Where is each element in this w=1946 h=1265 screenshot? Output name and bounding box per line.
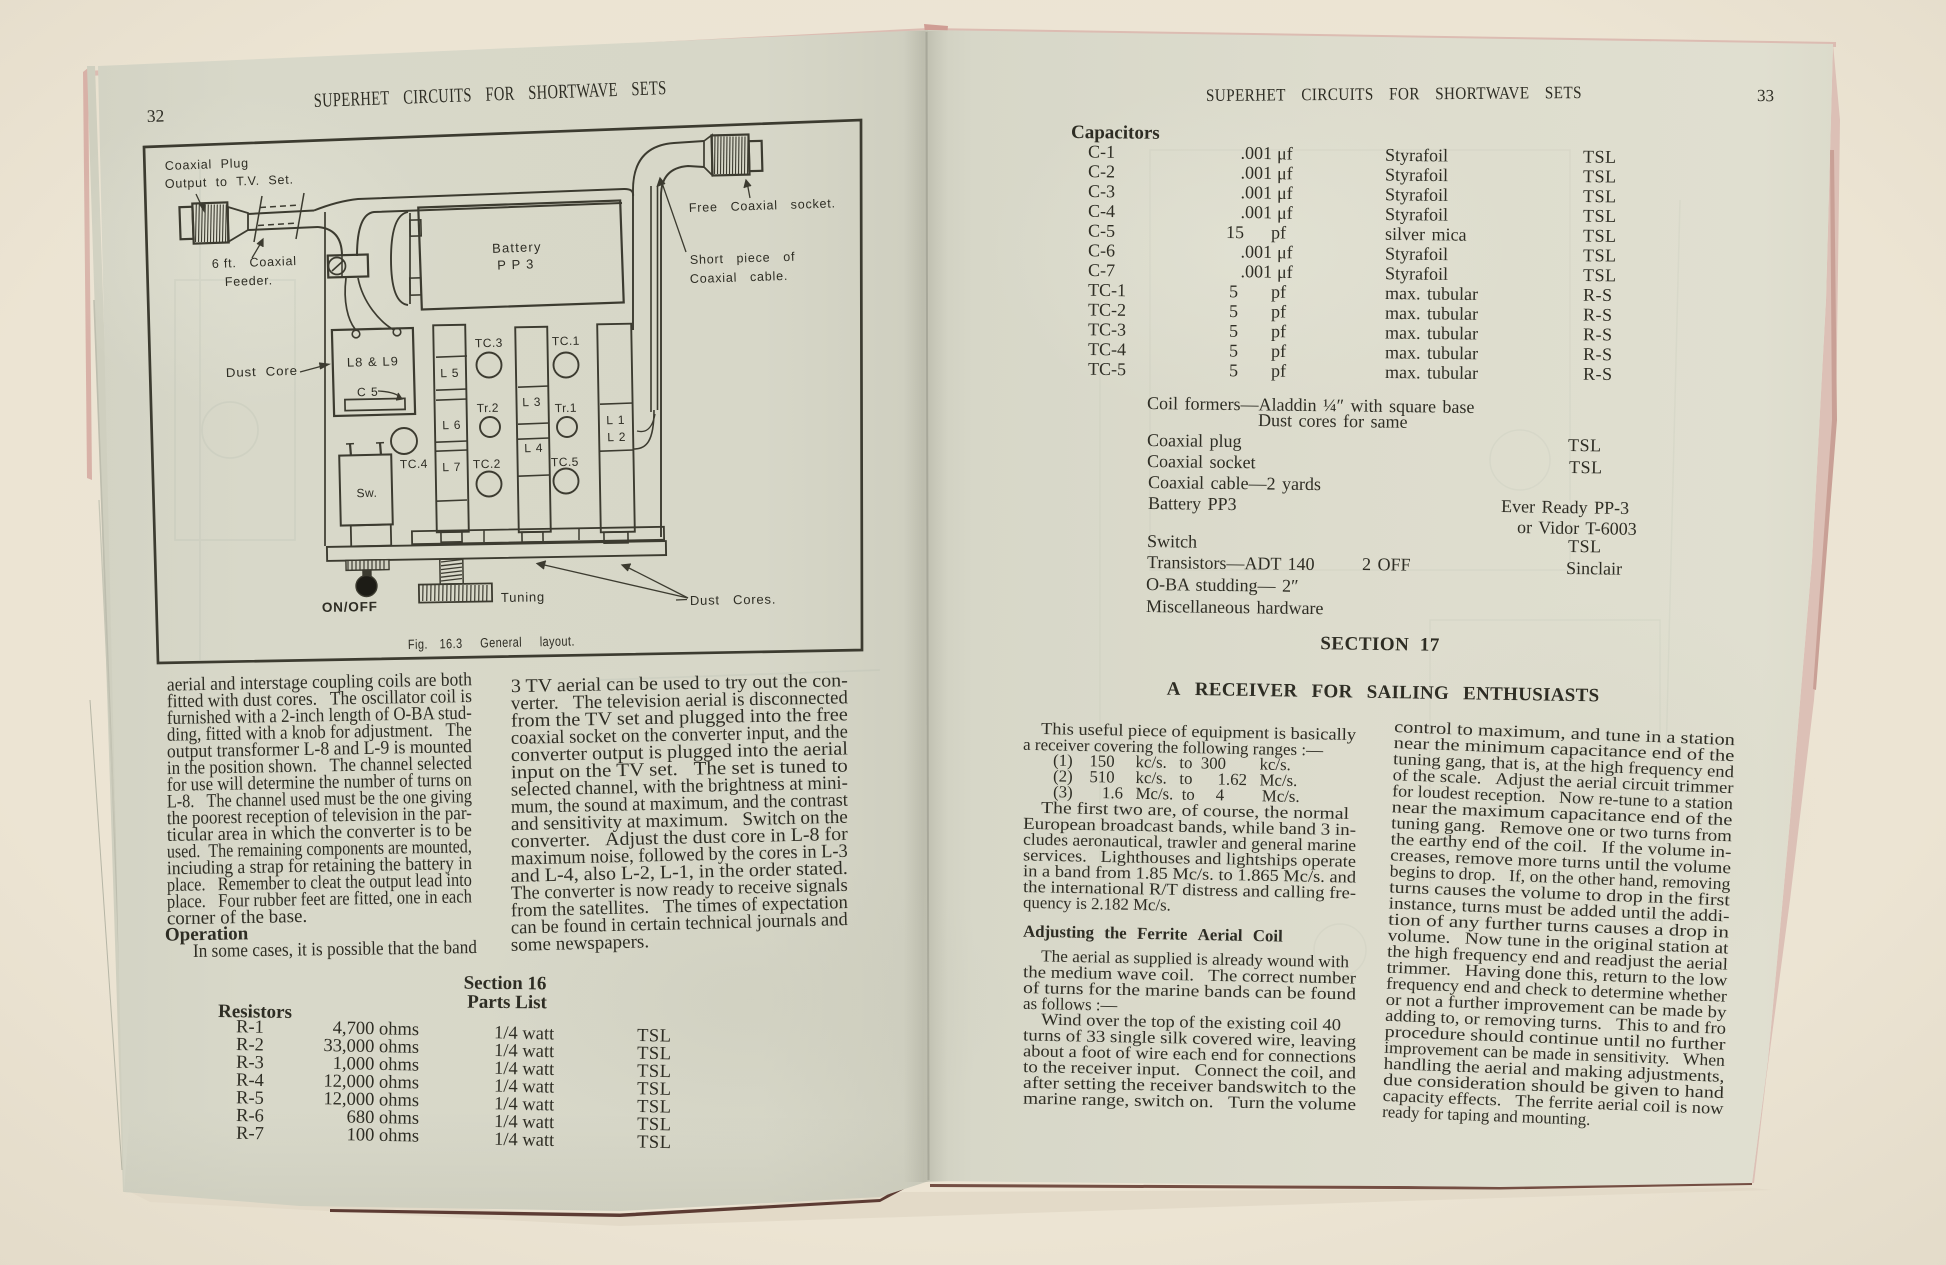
svg-text:pf: pf bbox=[1271, 282, 1286, 302]
svg-text:Tr.2: Tr.2 bbox=[477, 401, 500, 416]
svg-text:max. tubular: max. tubular bbox=[1385, 303, 1478, 324]
svg-text:15: 15 bbox=[1226, 222, 1244, 242]
svg-text:2 OFF: 2 OFF bbox=[1362, 554, 1411, 575]
svg-text:ON/OFF: ON/OFF bbox=[322, 599, 378, 615]
svg-text:L 3: L 3 bbox=[522, 395, 542, 409]
svg-text:P P 3: P P 3 bbox=[497, 256, 535, 272]
svg-text:R-S: R-S bbox=[1583, 364, 1613, 384]
svg-text:μf: μf bbox=[1277, 262, 1293, 282]
svg-text:μf: μf bbox=[1277, 143, 1293, 163]
svg-text:5: 5 bbox=[1229, 341, 1238, 361]
svg-text:32: 32 bbox=[146, 105, 164, 126]
svg-text:C-7: C-7 bbox=[1088, 260, 1115, 280]
svg-text:L 4: L 4 bbox=[524, 441, 544, 455]
svg-text:In some cases, it is possible: In some cases, it is possible that the b… bbox=[193, 937, 478, 962]
svg-text:TSL: TSL bbox=[1583, 226, 1617, 246]
svg-text:Ever Ready PP-3: Ever Ready PP-3 bbox=[1501, 496, 1629, 518]
svg-text:L 5: L 5 bbox=[440, 366, 460, 380]
svg-text:.001: .001 bbox=[1240, 162, 1272, 182]
svg-text:TC.2: TC.2 bbox=[473, 457, 501, 472]
svg-text:TC.5: TC.5 bbox=[551, 455, 579, 470]
svg-text:5: 5 bbox=[1229, 301, 1238, 321]
svg-text:Battery PP3: Battery PP3 bbox=[1148, 493, 1237, 514]
svg-text:TC-3: TC-3 bbox=[1088, 319, 1126, 339]
svg-text:Tuning: Tuning bbox=[501, 589, 545, 605]
svg-text:5: 5 bbox=[1229, 321, 1238, 341]
svg-text:C-5: C-5 bbox=[1088, 221, 1115, 241]
svg-text:Sinclair: Sinclair bbox=[1566, 558, 1622, 579]
svg-text:μf: μf bbox=[1277, 163, 1293, 183]
svg-text:.001: .001 bbox=[1240, 261, 1272, 281]
svg-text:pf: pf bbox=[1271, 321, 1286, 341]
svg-text:TC.4: TC.4 bbox=[400, 457, 428, 472]
svg-text:TC-4: TC-4 bbox=[1088, 339, 1126, 359]
svg-text:Battery: Battery bbox=[492, 239, 542, 256]
svg-text:100 ohms: 100 ohms bbox=[346, 1125, 419, 1146]
svg-text:6 ft. Coaxial: 6 ft. Coaxial bbox=[212, 254, 297, 271]
svg-text:Dust Cores.: Dust Cores. bbox=[690, 591, 777, 608]
svg-text:L8 & L9: L8 & L9 bbox=[347, 354, 399, 369]
svg-text:C-6: C-6 bbox=[1088, 240, 1115, 260]
svg-text:pf: pf bbox=[1271, 341, 1286, 361]
svg-text:O-BA studding— 2″: O-BA studding— 2″ bbox=[1146, 574, 1299, 596]
svg-text:TSL: TSL bbox=[1568, 536, 1602, 556]
svg-text:R-S: R-S bbox=[1583, 344, 1613, 364]
svg-text:some newspapers.: some newspapers. bbox=[511, 931, 650, 956]
svg-text:C-2: C-2 bbox=[1088, 161, 1115, 181]
svg-text:.001: .001 bbox=[1240, 241, 1272, 261]
svg-text:Styrafoil: Styrafoil bbox=[1385, 204, 1448, 225]
svg-text:Styrafoil: Styrafoil bbox=[1385, 184, 1448, 205]
svg-text:C-1: C-1 bbox=[1088, 142, 1115, 162]
svg-text:Styrafoil: Styrafoil bbox=[1385, 145, 1448, 166]
svg-text:R-7: R-7 bbox=[236, 1124, 264, 1145]
svg-text:33: 33 bbox=[1757, 86, 1774, 105]
svg-text:TC-1: TC-1 bbox=[1088, 280, 1126, 300]
svg-text:max. tubular: max. tubular bbox=[1385, 342, 1478, 363]
svg-text:TC-2: TC-2 bbox=[1088, 300, 1126, 320]
svg-text:R-S: R-S bbox=[1583, 305, 1613, 325]
svg-text:Dust cores for same: Dust cores for same bbox=[1258, 410, 1408, 432]
svg-text:Styrafoil: Styrafoil bbox=[1385, 244, 1448, 265]
svg-text:TSL: TSL bbox=[1583, 147, 1617, 167]
svg-text:TSL: TSL bbox=[1583, 206, 1617, 226]
svg-text:Capacitors: Capacitors bbox=[1071, 122, 1160, 144]
svg-text:Dust Core: Dust Core bbox=[226, 364, 298, 380]
svg-text:Styrafoil: Styrafoil bbox=[1385, 263, 1448, 284]
svg-text:L 2: L 2 bbox=[607, 430, 627, 444]
svg-text:R-S: R-S bbox=[1583, 285, 1613, 305]
svg-text:Coaxial cable—2 yards: Coaxial cable—2 yards bbox=[1148, 472, 1321, 494]
svg-text:TC.3: TC.3 bbox=[475, 336, 503, 351]
svg-text:Parts List: Parts List bbox=[467, 992, 548, 1014]
svg-text:μf: μf bbox=[1277, 203, 1293, 223]
svg-text:L 1: L 1 bbox=[606, 413, 626, 427]
svg-text:R-S: R-S bbox=[1583, 324, 1613, 344]
svg-text:C-3: C-3 bbox=[1088, 181, 1115, 201]
svg-text:μf: μf bbox=[1277, 242, 1293, 262]
svg-text:.001: .001 bbox=[1240, 202, 1272, 222]
svg-text:pf: pf bbox=[1271, 301, 1286, 321]
svg-text:TSL: TSL bbox=[1583, 265, 1617, 285]
svg-text:Coaxial plug: Coaxial plug bbox=[1147, 430, 1242, 451]
svg-text:Switch: Switch bbox=[1147, 531, 1197, 552]
svg-text:TC-5: TC-5 bbox=[1088, 359, 1126, 379]
svg-text:5: 5 bbox=[1229, 281, 1238, 301]
svg-text:Transistors—ADT 140: Transistors—ADT 140 bbox=[1147, 552, 1315, 574]
svg-text:μf: μf bbox=[1277, 183, 1293, 203]
svg-text:silver mica: silver mica bbox=[1385, 224, 1467, 245]
svg-text:Styrafoil: Styrafoil bbox=[1385, 165, 1448, 186]
svg-text:1/4 watt: 1/4 watt bbox=[494, 1130, 555, 1151]
svg-text:TSL: TSL bbox=[637, 1133, 672, 1154]
svg-text:L 7: L 7 bbox=[442, 460, 462, 474]
svg-text:C-4: C-4 bbox=[1088, 201, 1115, 221]
svg-text:.001: .001 bbox=[1240, 182, 1272, 202]
svg-text:pf: pf bbox=[1271, 222, 1286, 242]
svg-text:TSL: TSL bbox=[1583, 186, 1617, 206]
svg-text:.001: .001 bbox=[1240, 143, 1272, 163]
svg-text:TSL: TSL bbox=[1569, 457, 1603, 477]
svg-text:pf: pf bbox=[1271, 361, 1286, 381]
svg-text:Feeder.: Feeder. bbox=[225, 273, 273, 289]
svg-text:TC.1: TC.1 bbox=[552, 334, 580, 349]
svg-text:5: 5 bbox=[1229, 360, 1238, 380]
svg-text:Sw.: Sw. bbox=[356, 486, 377, 501]
svg-text:TSL: TSL bbox=[1583, 245, 1617, 265]
svg-text:TSL: TSL bbox=[1583, 166, 1617, 186]
svg-text:SECTION 17: SECTION 17 bbox=[1320, 633, 1440, 656]
svg-text:SUPERHET CIRCUITS FOR SHORT: SUPERHET CIRCUITS FOR SHORTWAVE SETS bbox=[1206, 82, 1582, 105]
svg-text:Tr.1: Tr.1 bbox=[555, 401, 578, 416]
svg-text:Coaxial Plug: Coaxial Plug bbox=[165, 156, 249, 173]
svg-text:Coaxial socket: Coaxial socket bbox=[1147, 451, 1256, 472]
svg-text:C 5: C 5 bbox=[357, 385, 379, 400]
svg-text:max. tubular: max. tubular bbox=[1385, 362, 1478, 383]
svg-text:max. tubular: max. tubular bbox=[1385, 323, 1478, 344]
svg-text:quency is 2.182 Mc/s.: quency is 2.182 Mc/s. bbox=[1023, 893, 1171, 915]
svg-text:L 6: L 6 bbox=[442, 418, 462, 432]
svg-text:Miscellaneous hardware: Miscellaneous hardware bbox=[1146, 596, 1324, 618]
svg-text:TSL: TSL bbox=[1568, 435, 1602, 455]
svg-text:max. tubular: max. tubular bbox=[1385, 283, 1478, 304]
